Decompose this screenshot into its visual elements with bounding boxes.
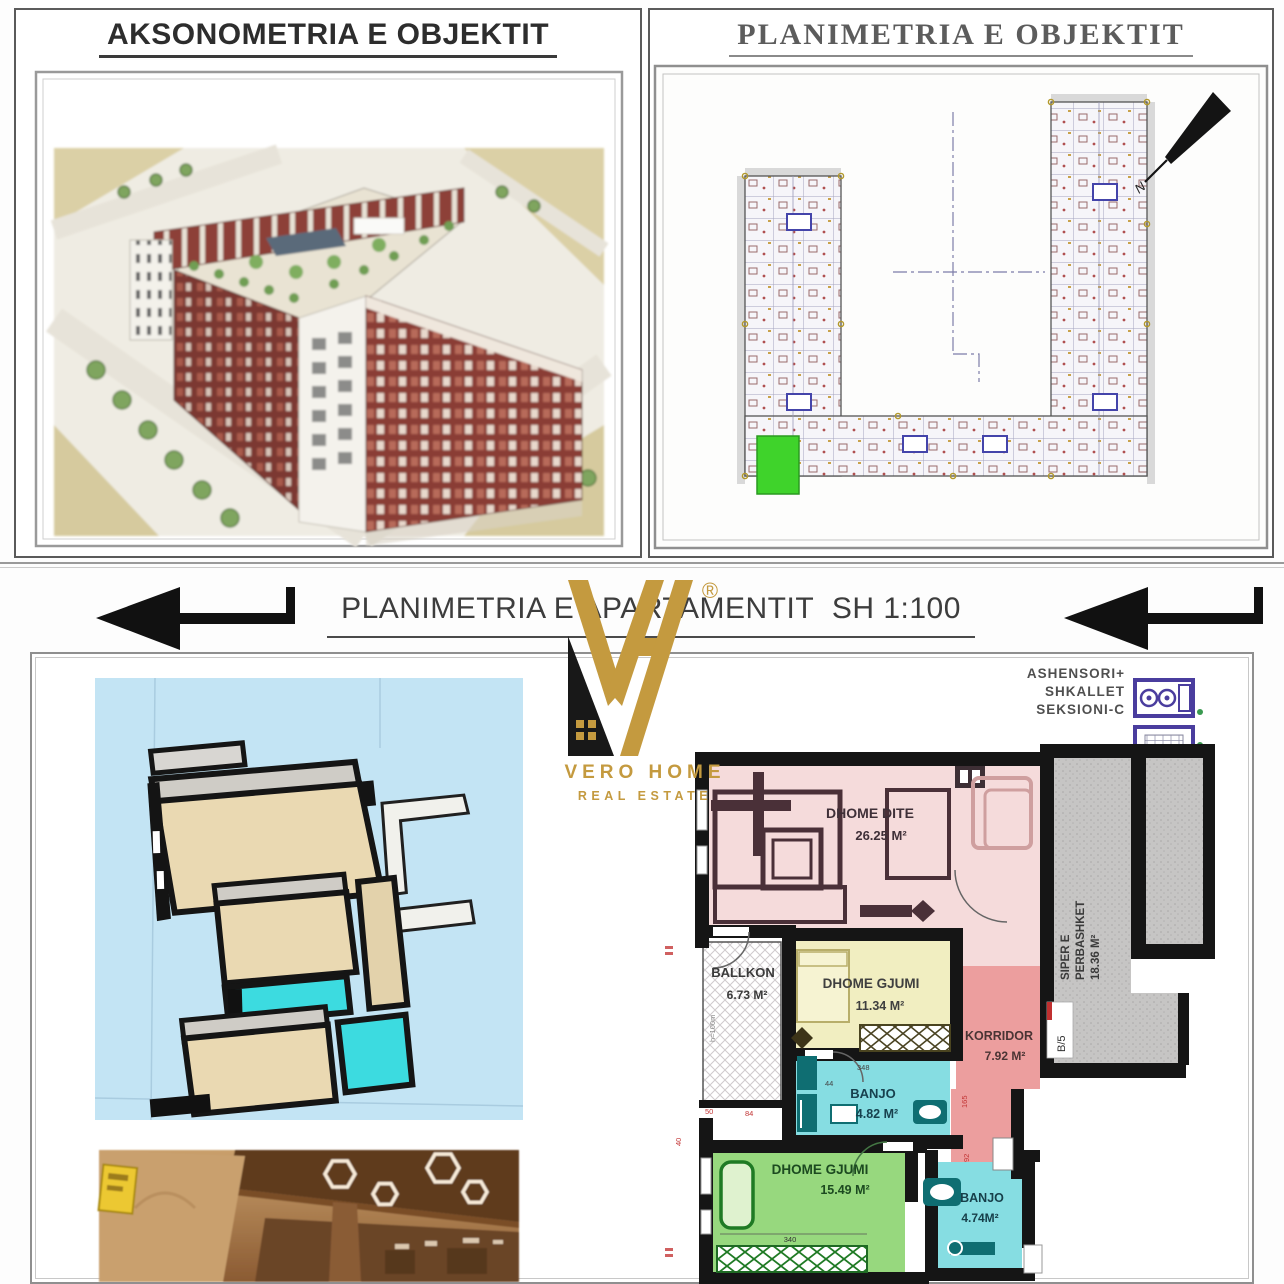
axonometry-title-text: AKSONOMETRIA E OBJEKTIT [99, 18, 557, 58]
render-photo [54, 148, 604, 546]
dim-50: 50 [705, 1107, 713, 1116]
bedroom1-area: 11.34 M² [856, 999, 905, 1013]
living-label: DHOME DITE [826, 805, 914, 821]
site-plan-title: PLANIMETRIA E OBJEKTIT [650, 18, 1272, 57]
dim-340: 340 [784, 1235, 797, 1244]
apartment-3d-model [95, 678, 523, 1120]
dim-44: 44 [825, 1079, 833, 1088]
divider-line [0, 562, 1284, 564]
bedroom2-area: 15.49 M² [820, 1183, 869, 1197]
stair-note-line1: ASHENSORI+ [1027, 666, 1125, 681]
real-estate-sheet: AKSONOMETRIA E OBJEKTIT [0, 0, 1284, 1284]
registered-mark: ® [702, 578, 718, 603]
dim-84: 84 [745, 1109, 753, 1118]
balcony-height-note: h=100m [708, 1015, 717, 1042]
apartment-floor-plan: ASHENSORI+ SHKALLET SEKSIONI-C [655, 650, 1215, 1284]
bedroom1-label: DHOME GJUMI [823, 976, 920, 991]
building-3d-render [34, 70, 624, 548]
interior-photo [95, 1148, 523, 1282]
stair-note-line2: SHKALLET [1045, 684, 1125, 699]
logo-brand-text: VERO HOME [564, 762, 725, 783]
corridor-label: KORRIDOR [965, 1029, 1033, 1043]
bath2-label: BANJO [960, 1191, 1004, 1205]
balcony-label: BALLKON [711, 965, 775, 980]
stair-note-line3: SEKSIONI-C [1036, 702, 1125, 717]
dim-348: 348 [857, 1063, 870, 1072]
balcony-area: 6.73 M² [727, 988, 768, 1002]
bath1-label: BANJO [850, 1086, 896, 1101]
bath1-area: 4.82 M² [856, 1107, 898, 1121]
room-corridor [956, 966, 1040, 1089]
common-area-size: 18.36 M² [1090, 934, 1102, 980]
site-plan-title-text: PLANIMETRIA E OBJEKTIT [729, 18, 1192, 57]
vero-home-logo: ® VERO HOME REAL ESTATE [558, 566, 733, 811]
stair-note: ASHENSORI+ SHKALLET SEKSIONI-C [1027, 666, 1125, 717]
living-area: 26.25 M² [855, 828, 907, 843]
elevator-icon [1135, 680, 1193, 716]
edge-marks [665, 946, 673, 1257]
room-living-ext [963, 928, 1046, 968]
common-line2: PERBASHKET [1075, 901, 1087, 980]
unit-tag: B/5 [1047, 1002, 1073, 1058]
axonometry-title: AKSONOMETRIA E OBJEKTIT [16, 18, 640, 58]
dim-40: 40 [674, 1138, 683, 1146]
bath2-area: 4.74M² [961, 1211, 998, 1225]
unit-label: B/5 [1056, 1035, 1068, 1052]
building-floor-plan: N [653, 64, 1269, 550]
dim-92: 92 [962, 1154, 971, 1162]
vero-home-logo-mark-icon: ® [568, 578, 718, 756]
yellow-sign [99, 1164, 138, 1213]
bedroom2-label: DHOME GJUMI [772, 1162, 869, 1177]
logo-tagline-text: REAL ESTATE [578, 789, 712, 803]
dim-165: 165 [960, 1095, 969, 1108]
highlighted-unit [757, 436, 799, 494]
common-line1: SIPER E [1060, 934, 1072, 980]
corridor-area: 7.92 M² [985, 1049, 1026, 1063]
